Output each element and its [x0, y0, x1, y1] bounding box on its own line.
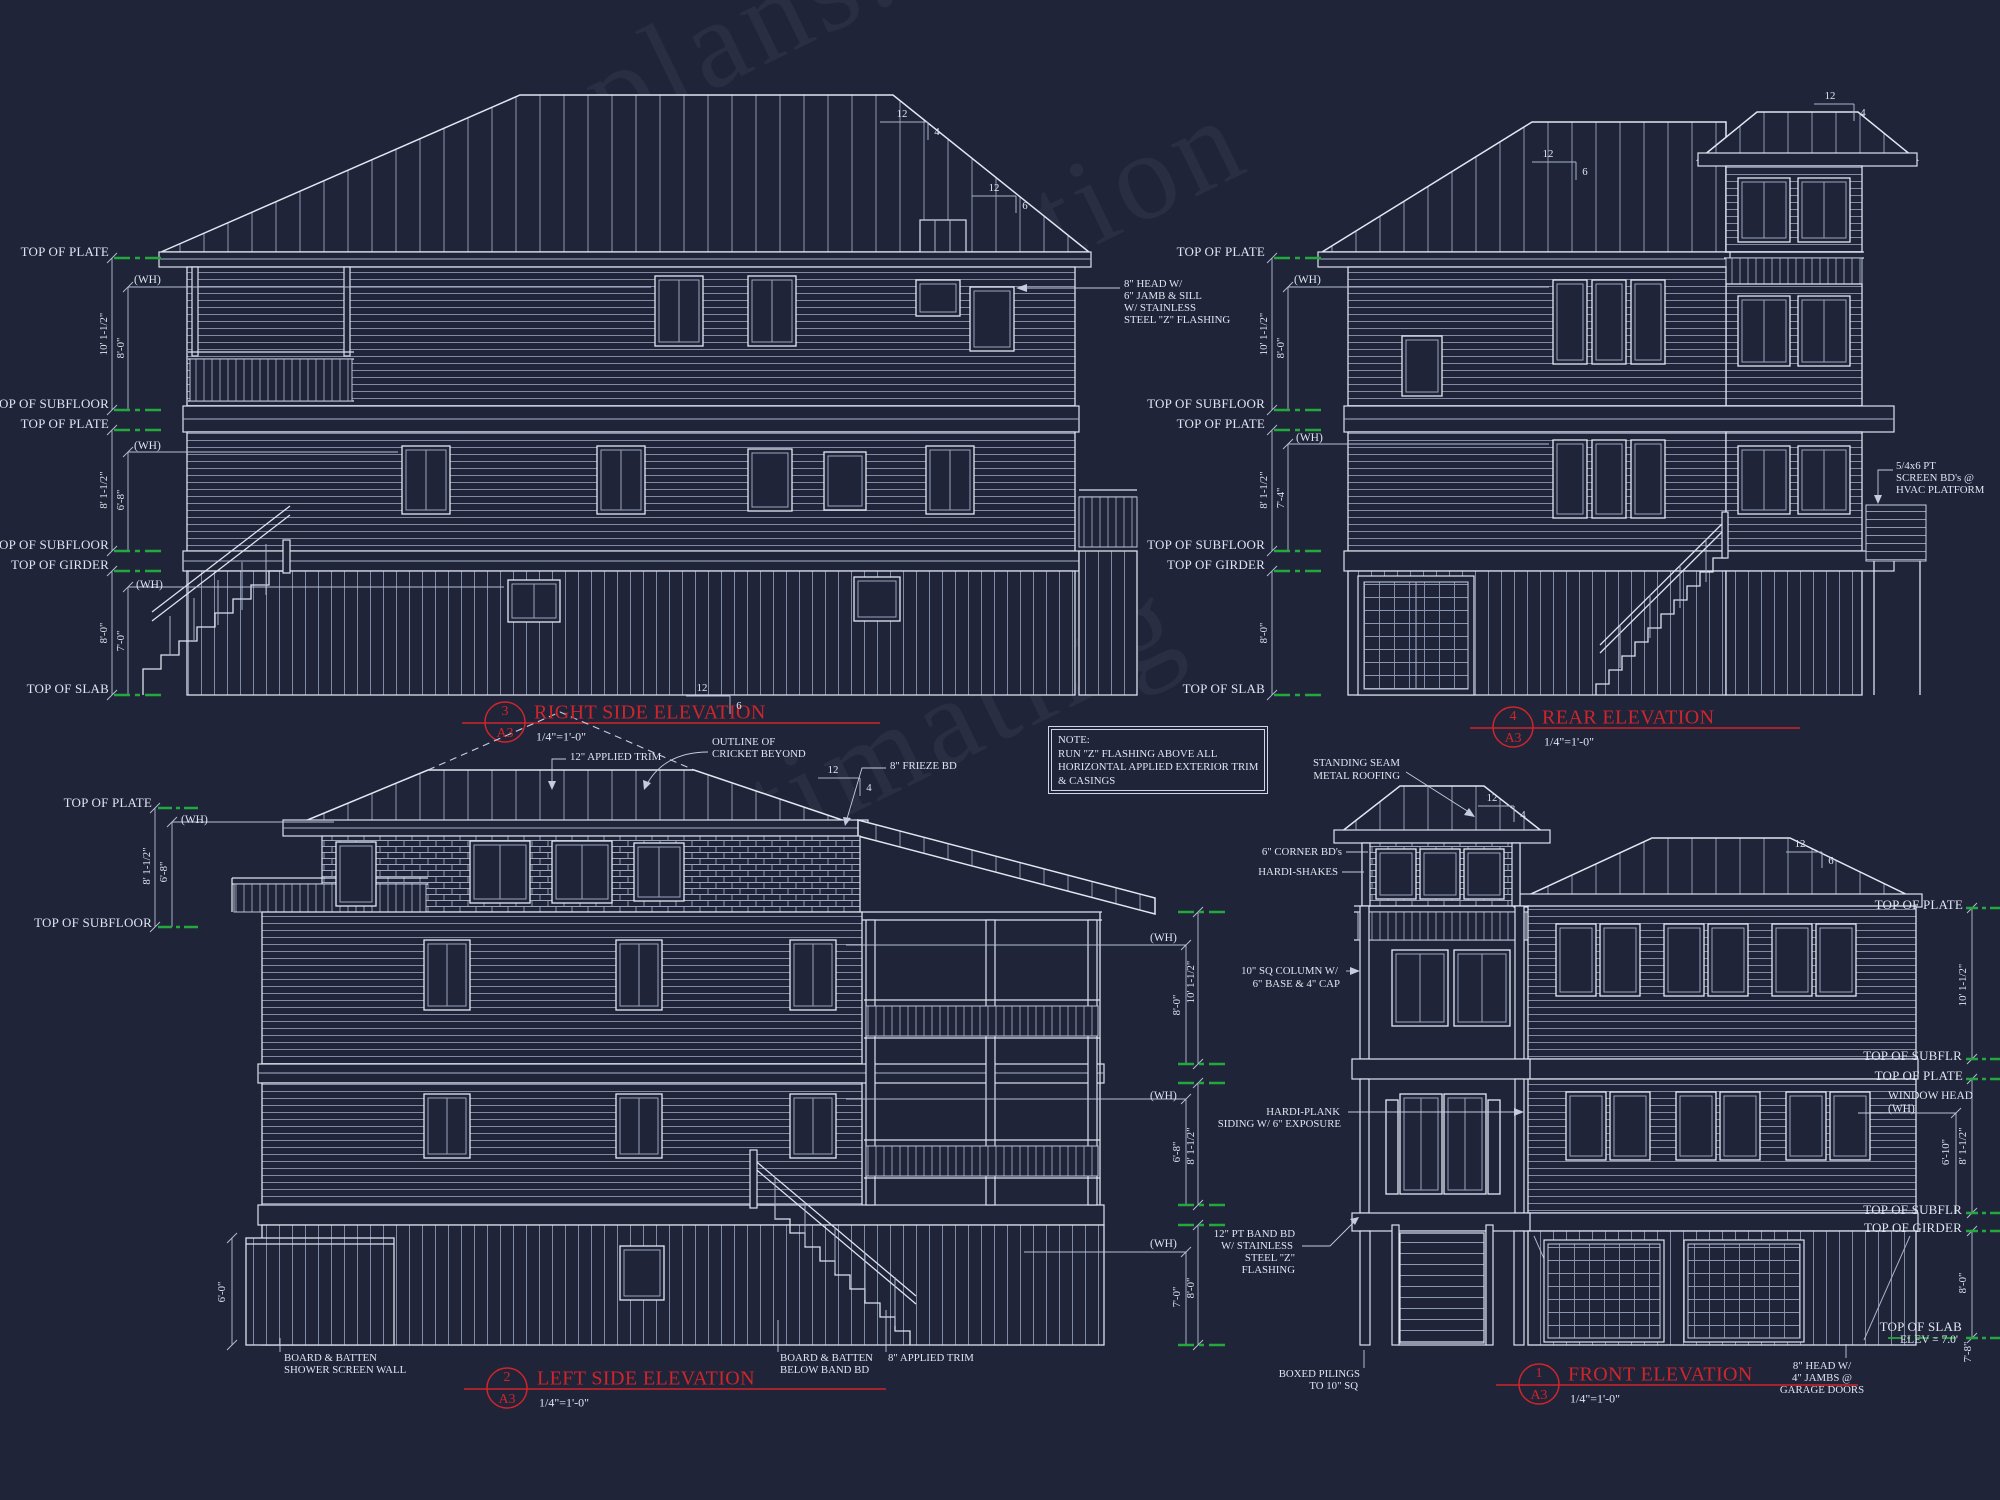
scale-label: 1/4"=1'-0" — [1544, 735, 1594, 750]
dim-label: 8'-0" — [1258, 623, 1270, 644]
dim-label: 6'-8" — [158, 862, 170, 883]
wh-label: (WH) — [1294, 274, 1321, 286]
level-markers — [114, 258, 161, 695]
wh-label: (WH) — [1150, 1238, 1177, 1250]
screen-callout: HVAC PLATFORM — [1896, 484, 1984, 496]
level-label-plate: TOP OF PLATE — [21, 244, 109, 260]
sheet-number: A3 — [496, 726, 513, 742]
tower-girder-band — [1352, 1213, 1530, 1231]
wh-label: (WH) — [1150, 932, 1177, 944]
porch-column — [1360, 1079, 1369, 1213]
roof-cricket — [920, 220, 966, 252]
corner-callout: 6" CORNER BD's — [1262, 846, 1342, 858]
wing-roof — [858, 820, 1155, 914]
scale-label: 1/4"=1'-0" — [1570, 1392, 1620, 1407]
tower-band-board — [1352, 1059, 1530, 1079]
dim-label: 7'-0" — [115, 631, 127, 652]
pitch-rise: 6 — [1828, 855, 1833, 867]
tower-piling-level — [1726, 571, 1862, 695]
shower-callout: BOARD & BATTEN — [284, 1352, 377, 1364]
left-side-elevation-drawing — [140, 696, 1225, 1408]
girder-band — [1344, 551, 1894, 571]
window-head-label: WINDOW HEAD — [1888, 1090, 1973, 1102]
pitch-run: 12 — [1795, 838, 1806, 850]
lower-wall-siding — [1348, 432, 1726, 551]
main-fascia — [1514, 894, 1922, 907]
band-callout: W/ STAINLESS — [1221, 1240, 1293, 1252]
boxed-piling — [1360, 1231, 1370, 1345]
girder-band — [1524, 1213, 1918, 1231]
pitch-run: 12 — [989, 182, 1000, 194]
porch — [862, 912, 1102, 1205]
dim-label: 6'-0" — [216, 1282, 228, 1303]
head-callout: STEEL "Z" FLASHING — [1124, 314, 1230, 326]
level-label-slab: TOP OF SLAB — [1880, 1319, 1962, 1335]
level-label-subfloor: TOP OF SUBFLOOR — [0, 537, 109, 553]
pitch-rise: 4 — [1860, 107, 1865, 119]
pitch-run: 12 — [1543, 148, 1554, 160]
level-markers — [1966, 908, 2000, 1338]
blueprint-sheet: plans.com for Construction for Estimatin… — [0, 0, 2000, 1500]
wh-label: (WH) — [1296, 432, 1323, 444]
trim-callout: 8" APPLIED TRIM — [888, 1352, 974, 1364]
trim-callout: 12" APPLIED TRIM — [570, 751, 661, 763]
dim-label: 8'-0" — [1171, 995, 1183, 1016]
note-box: NOTE: RUN "Z" FLASHING ABOVE ALL HORIZON… — [1048, 726, 1268, 794]
pitch-run: 12 — [1825, 90, 1836, 102]
dim-label: 7'-4" — [1275, 488, 1287, 509]
level-label-plate: TOP OF PLATE — [21, 416, 109, 432]
wh-label: (WH) — [136, 579, 163, 591]
dim-label: 10' 1-1/2" — [1957, 964, 1969, 1007]
detail-number: 2 — [504, 1370, 511, 1386]
level-label-subflr: TOP OF SUBFLR — [1863, 1048, 1962, 1064]
dim-label: 8'-0" — [115, 338, 127, 359]
dim-label: 7'-0" — [1171, 1287, 1183, 1308]
corner-board — [1512, 843, 1520, 906]
garage-callout: 8" HEAD W/ — [1793, 1360, 1851, 1372]
level-markers — [1274, 258, 1321, 695]
pilings-callout: TO 10" SQ — [1309, 1380, 1358, 1392]
dim-label: 8'-0" — [1957, 1273, 1969, 1294]
pitch-rise: 4 — [1520, 809, 1525, 821]
level-label-girder: TOP OF GIRDER — [11, 557, 109, 573]
level-label-slab: TOP OF SLAB — [1183, 681, 1265, 697]
porch-column — [1360, 906, 1369, 1059]
band-callout: FLASHING — [1242, 1264, 1295, 1276]
dim-label: 8' 1-1/2" — [1957, 1127, 1969, 1164]
dim-label: 6'-8" — [115, 490, 127, 511]
dim-label: 8' 1-1/2" — [1185, 1127, 1197, 1164]
screen-callout: SCREEN BD's @ — [1896, 472, 1974, 484]
note-line: RUN "Z" FLASHING ABOVE ALL — [1058, 748, 1258, 762]
head-callout: W/ STAINLESS — [1124, 302, 1196, 314]
level-label-subfloor: TOP OF SUBFLOOR — [1147, 537, 1265, 553]
level-label-subfloor: TOP OF SUBFLOOR — [0, 396, 109, 412]
level-label-plate: TOP OF PLATE — [1177, 244, 1265, 260]
level-label-subfloor: TOP OF SUBFLOOR — [34, 915, 152, 931]
rear-elevation-drawing — [1267, 104, 1952, 747]
elevation-title: FRONT ELEVATION — [1568, 1364, 1753, 1387]
pitch-rise: 6 — [1582, 166, 1587, 178]
pitch-run: 12 — [697, 682, 708, 694]
pitch-run: 12 — [1487, 792, 1498, 804]
front-elevation-drawing — [1292, 772, 2000, 1404]
upper-roof — [293, 770, 860, 826]
level-label-girder: TOP OF GIRDER — [1864, 1220, 1962, 1236]
slab-elevation-label: ELEV = 7.0' — [1900, 1334, 1958, 1346]
garage-callout: GARAGE DOORS — [1780, 1384, 1864, 1396]
band-board — [1524, 1059, 1918, 1079]
dim-label: 6'-8" — [1171, 1142, 1183, 1163]
dim-label: 10' 1-1/2" — [98, 313, 110, 356]
dim-label: 8' 1-1/2" — [98, 471, 110, 508]
front-stairs — [1392, 1225, 1493, 1345]
window-head-label: (WH) — [1888, 1103, 1915, 1115]
detail-number: 4 — [1510, 709, 1517, 725]
tower-balcony — [1354, 906, 1530, 940]
detail-number: 3 — [502, 704, 509, 720]
band-callout: BOARD & BATTEN — [780, 1352, 873, 1364]
shakes-callout: HARDI-SHAKES — [1258, 866, 1338, 878]
dim-label: 7'-8" — [1962, 1342, 1974, 1363]
scale-label: 1/4"=1'-0" — [539, 1396, 589, 1411]
upper-wall-siding — [262, 912, 862, 1064]
right-side-elevation-drawing — [107, 95, 1158, 742]
elevation-title: LEFT SIDE ELEVATION — [537, 1368, 755, 1391]
dim-label: 8' 1-1/2" — [1258, 471, 1270, 508]
elevation-linework — [0, 0, 2000, 1500]
cricket-callout: OUTLINE OF — [712, 736, 775, 748]
note-line: HORIZONTAL APPLIED EXTERIOR TRIM — [1058, 761, 1258, 775]
porch-column — [1515, 906, 1524, 1059]
level-label-plate: TOP OF PLATE — [1875, 897, 1963, 913]
porch-column — [1515, 1079, 1524, 1213]
sheet-number: A3 — [498, 1392, 515, 1408]
dim-label: 6'-10" — [1940, 1139, 1952, 1165]
dim-label: 8'-0" — [1275, 338, 1287, 359]
boxed-piling — [1514, 1231, 1524, 1345]
pitch-run: 12 — [828, 764, 839, 776]
pitch-rise: 4 — [866, 782, 871, 794]
dim-label: 8' 1-1/2" — [141, 847, 153, 884]
pitch-rise: 4 — [934, 126, 939, 138]
detail-number: 1 — [1536, 1366, 1543, 1382]
level-label-plate: TOP OF PLATE — [1875, 1068, 1963, 1084]
tower-roof — [1336, 786, 1548, 836]
cricket-callout: CRICKET BEYOND — [712, 748, 806, 760]
head-callout: 6" JAMB & SILL — [1124, 290, 1202, 302]
column-callout: 6" BASE & 4" CAP — [1253, 978, 1340, 990]
wh-label: (WH) — [134, 440, 161, 452]
pitch-run: 12 — [897, 108, 908, 120]
pitch-rise: 6 — [1022, 200, 1027, 212]
shower-screen-wall — [246, 1238, 394, 1345]
sheet-number: A3 — [1530, 1388, 1547, 1404]
roof — [1322, 122, 1726, 252]
hvac-platform — [1866, 505, 1926, 695]
main-roof — [1518, 838, 1918, 900]
plank-callout: SIDING W/ 6" EXPOSURE — [1218, 1118, 1341, 1130]
tower-fascia — [1334, 830, 1550, 843]
wh-label: (WH) — [1150, 1090, 1177, 1102]
dim-label: 10' 1-1/2" — [1185, 961, 1197, 1004]
screen-callout: 5/4x6 PT — [1896, 460, 1936, 472]
head-callout: 8" HEAD W/ — [1124, 278, 1182, 290]
level-label-plate: TOP OF PLATE — [1177, 416, 1265, 432]
band-callout: STEEL "Z" — [1245, 1252, 1295, 1264]
roof-callout: STANDING SEAM — [1313, 757, 1400, 769]
band-callout: 12" PT BAND BD — [1214, 1228, 1295, 1240]
dim-label: 10' 1-1/2" — [1258, 313, 1270, 356]
right-stair-enclosure — [1079, 490, 1137, 695]
dim-label: 8'-0" — [98, 623, 110, 644]
level-label-plate: TOP OF PLATE — [64, 795, 152, 811]
frieze-callout: 8" FRIEZE BD — [890, 760, 957, 772]
column-callout: 10" SQ COLUMN W/ — [1241, 965, 1338, 977]
level-label-subflr: TOP OF SUBFLR — [1863, 1202, 1962, 1218]
garage-door — [1358, 576, 1474, 695]
tower-fascia — [1698, 153, 1917, 166]
plank-callout: HARDI-PLANK — [1266, 1106, 1340, 1118]
garage-callout: 4" JAMBS @ — [1792, 1372, 1852, 1384]
tower-balcony-rail — [1726, 258, 1862, 284]
shower-callout: SHOWER SCREEN WALL — [284, 1364, 406, 1376]
lower-wall-siding — [262, 1083, 862, 1205]
roof-callout: METAL ROOFING — [1313, 770, 1400, 782]
pilings-callout: BOXED PILINGS — [1279, 1368, 1360, 1380]
pitch-rise: 6 — [736, 700, 741, 712]
note-title: NOTE: — [1058, 734, 1258, 748]
note-line: & CASINGS — [1058, 775, 1258, 789]
level-label-slab: TOP OF SLAB — [27, 681, 109, 697]
level-label-subfloor: TOP OF SUBFLOOR — [1147, 396, 1265, 412]
elevation-title: RIGHT SIDE ELEVATION — [534, 702, 766, 725]
dim-label: 8'-0" — [1185, 1278, 1197, 1299]
girder-band — [258, 1205, 1104, 1225]
wh-label: (WH) — [134, 274, 161, 286]
scale-label: 1/4"=1'-0" — [536, 730, 586, 745]
band-callout: BELOW BAND BD — [780, 1364, 869, 1376]
sheet-number: A3 — [1504, 731, 1521, 747]
elevation-title: REAR ELEVATION — [1542, 707, 1714, 730]
wh-label: (WH) — [181, 814, 208, 826]
level-label-girder: TOP OF GIRDER — [1167, 557, 1265, 573]
piling-level — [187, 571, 1075, 695]
